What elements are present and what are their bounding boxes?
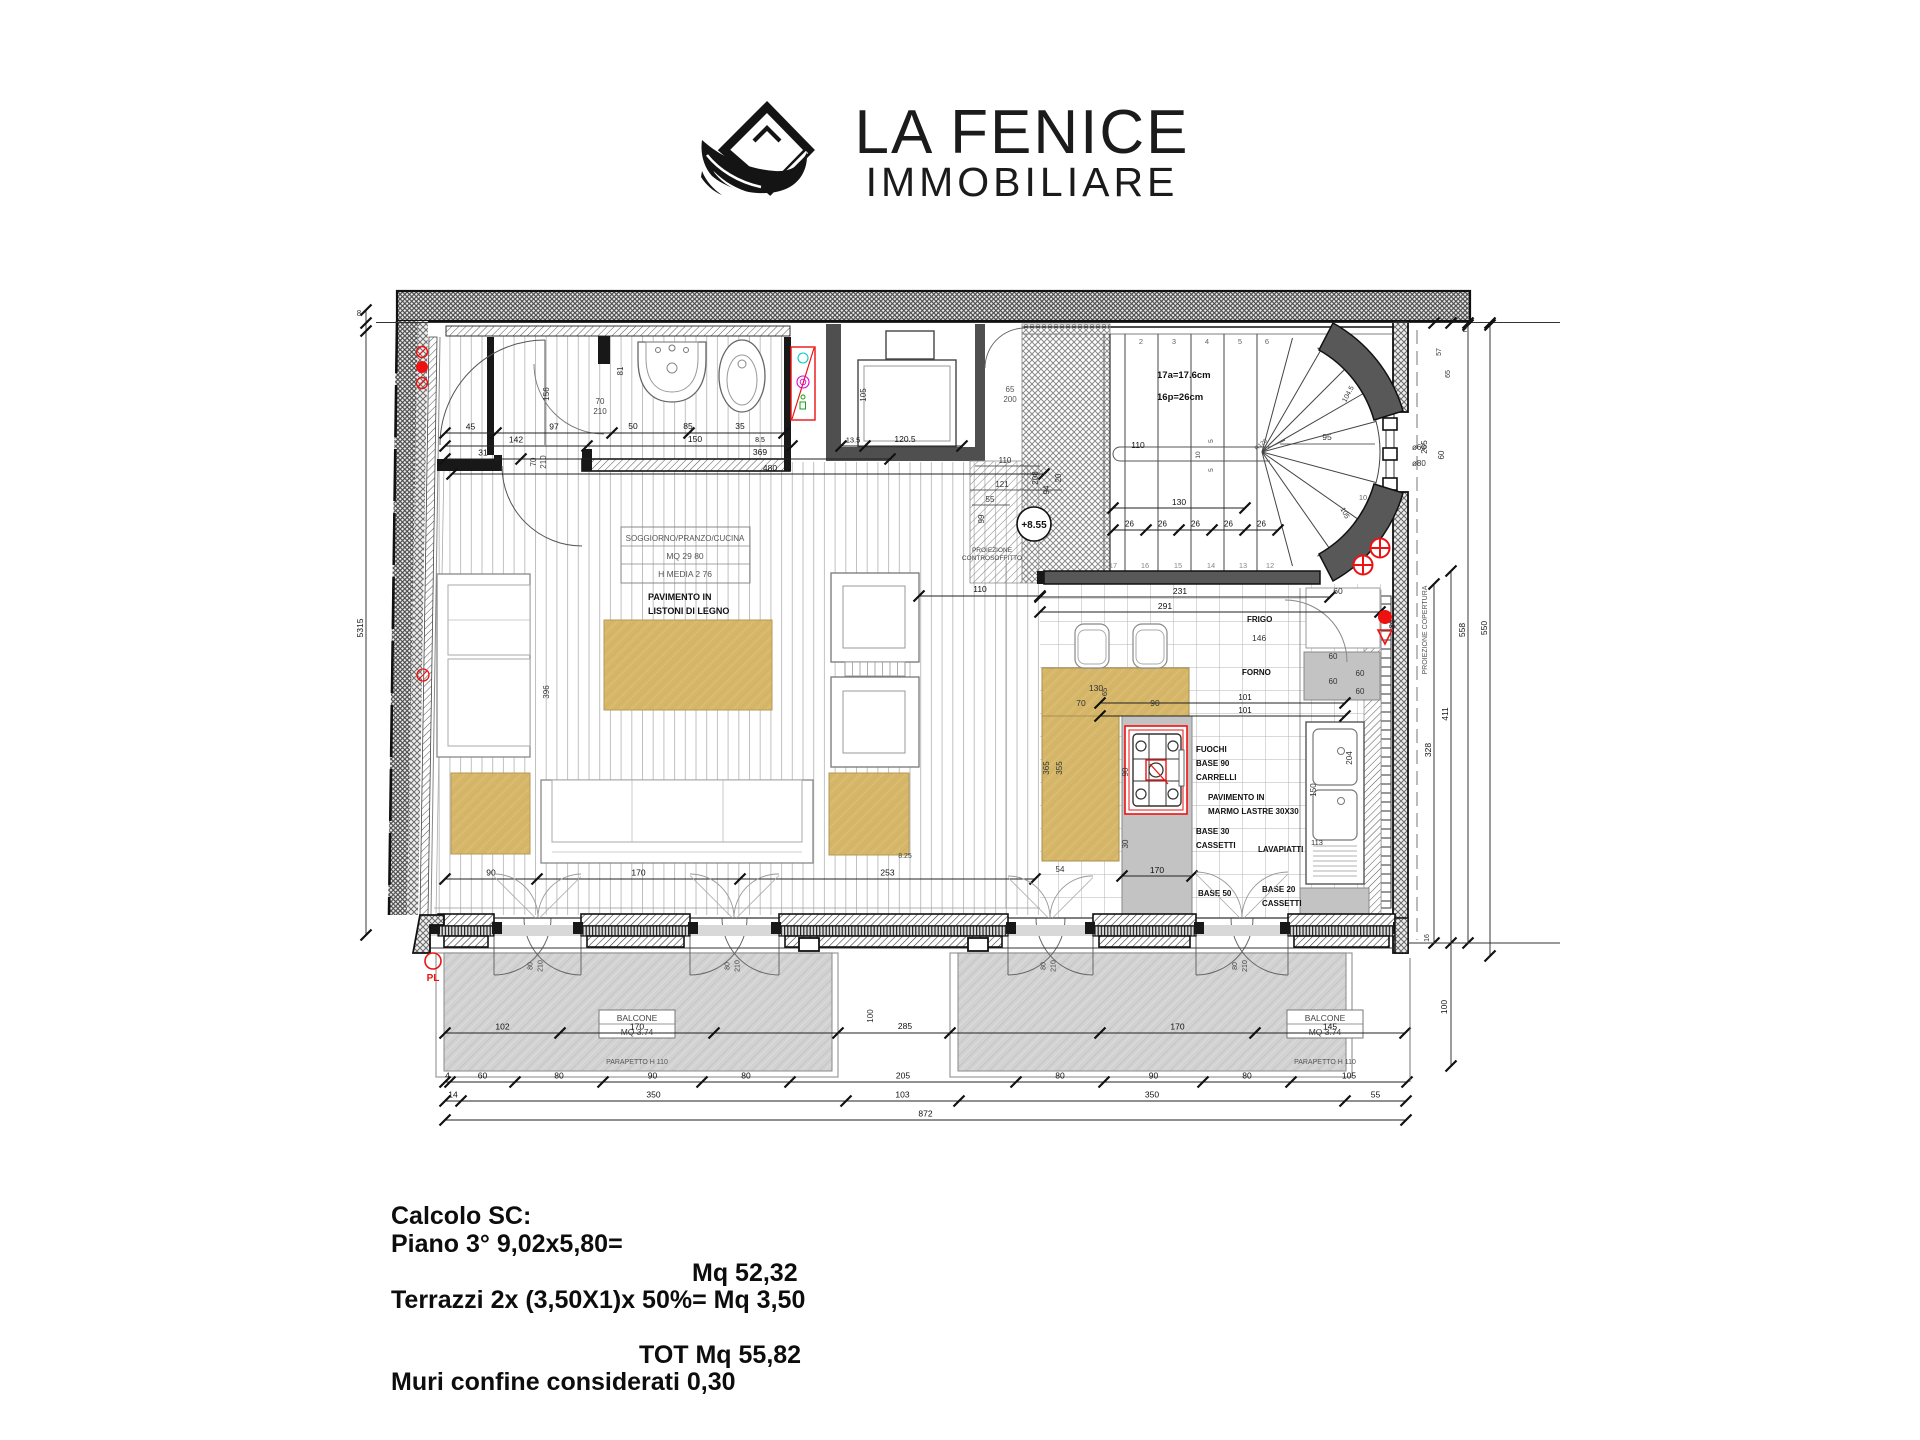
svg-text:60: 60	[1329, 652, 1338, 661]
svg-text:5: 5	[1238, 337, 1242, 346]
svg-text:411: 411	[1440, 707, 1450, 721]
svg-text:95: 95	[1322, 432, 1332, 442]
svg-text:Terrazzi 2x (3,50X1)x 50%= Mq: Terrazzi 2x (3,50X1)x 50%= Mq 3,50	[391, 1286, 805, 1314]
svg-text:90: 90	[1149, 1071, 1159, 1081]
svg-text:265: 265	[1420, 440, 1429, 454]
svg-text:110: 110	[1131, 440, 1145, 450]
svg-text:90: 90	[1150, 698, 1160, 708]
svg-text:2: 2	[1139, 337, 1143, 346]
svg-text:PARAPETTO H 110: PARAPETTO H 110	[606, 1059, 668, 1066]
svg-text:LA FENICE: LA FENICE	[855, 98, 1190, 167]
svg-text:80: 80	[1242, 1071, 1252, 1081]
svg-text:30: 30	[1121, 839, 1130, 848]
svg-text:BASE 30: BASE 30	[1196, 827, 1230, 836]
svg-text:204: 204	[1345, 751, 1354, 765]
svg-text:SOGGIORNO/PRANZO/CUCINA: SOGGIORNO/PRANZO/CUCINA	[626, 534, 745, 543]
svg-text:170: 170	[1150, 865, 1164, 875]
svg-text:205: 205	[896, 1071, 910, 1081]
svg-text:113: 113	[1311, 838, 1323, 847]
svg-text:Muri confine considerati 0,30: Muri confine considerati 0,30	[391, 1368, 736, 1396]
svg-text:550: 550	[1479, 621, 1489, 635]
svg-text:10: 10	[1359, 493, 1367, 502]
svg-text:Calcolo SC:: Calcolo SC:	[391, 1202, 531, 1230]
svg-text:105: 105	[859, 388, 868, 402]
svg-text:285: 285	[898, 1021, 912, 1031]
svg-text:80: 80	[1041, 962, 1048, 970]
svg-text:CARRELLI: CARRELLI	[1196, 773, 1236, 782]
svg-text:65: 65	[1445, 370, 1452, 378]
svg-text:12: 12	[1266, 561, 1274, 570]
svg-text:170: 170	[1170, 1022, 1184, 1032]
svg-text:PARAPETTO H 110: PARAPETTO H 110	[1294, 1059, 1356, 1066]
svg-text:365: 365	[1042, 761, 1051, 775]
svg-text:13.5: 13.5	[846, 436, 861, 445]
svg-text:26: 26	[1224, 520, 1233, 529]
svg-text:4: 4	[1205, 337, 1209, 346]
svg-text:PL: PL	[427, 973, 440, 984]
svg-text:210: 210	[735, 960, 742, 972]
svg-text:150: 150	[1309, 783, 1318, 797]
svg-text:146: 146	[1252, 633, 1266, 643]
svg-text:5: 5	[1208, 439, 1215, 443]
svg-text:210: 210	[1051, 960, 1058, 972]
svg-text:8.5: 8.5	[755, 437, 765, 444]
svg-text:16p=26cm: 16p=26cm	[1157, 392, 1203, 403]
svg-text:CONTROSOFFITTO: CONTROSOFFITTO	[962, 555, 1022, 562]
svg-text:170: 170	[630, 1022, 644, 1032]
svg-text:16: 16	[1141, 561, 1149, 570]
svg-text:Piano 3° 9,02x5,80=: Piano 3° 9,02x5,80=	[391, 1230, 623, 1258]
svg-text:26: 26	[1125, 520, 1134, 529]
svg-text:26: 26	[1191, 520, 1200, 529]
svg-text:80: 80	[528, 962, 535, 970]
svg-text:FUOCHI: FUOCHI	[1196, 745, 1227, 754]
svg-text:65: 65	[1006, 385, 1015, 394]
svg-text:31: 31	[478, 448, 488, 458]
svg-text:94: 94	[1042, 485, 1051, 494]
svg-text:60: 60	[1356, 687, 1365, 696]
svg-text:MARMO LASTRE 30X30: MARMO LASTRE 30X30	[1208, 807, 1299, 816]
svg-text:15: 15	[1174, 561, 1182, 570]
svg-text:55: 55	[1371, 1090, 1381, 1100]
svg-text:PROIEZIONE: PROIEZIONE	[972, 547, 1013, 554]
svg-text:558: 558	[1457, 623, 1467, 637]
svg-text:110: 110	[999, 456, 1012, 465]
svg-text:50: 50	[628, 421, 638, 431]
svg-text:210: 210	[538, 960, 545, 972]
svg-text:210: 210	[1242, 960, 1249, 972]
svg-text:60: 60	[1437, 450, 1446, 459]
svg-text:55: 55	[986, 495, 995, 504]
svg-text:105: 105	[1342, 1071, 1356, 1081]
svg-text:+8.55: +8.55	[1021, 520, 1047, 531]
svg-text:231: 231	[1173, 586, 1187, 596]
svg-text:102: 102	[495, 1022, 509, 1032]
svg-text:85: 85	[683, 421, 693, 431]
svg-text:FRIGO: FRIGO	[1247, 615, 1272, 624]
svg-text:355: 355	[1055, 761, 1064, 775]
svg-text:200: 200	[1003, 395, 1017, 404]
svg-text:LAVAPIATTI: LAVAPIATTI	[1258, 845, 1303, 854]
svg-text:80: 80	[1232, 962, 1239, 970]
svg-text:ø80: ø80	[1412, 459, 1426, 468]
svg-text:70: 70	[1076, 698, 1086, 708]
svg-text:120.5: 120.5	[894, 434, 916, 444]
svg-text:14: 14	[448, 1090, 458, 1100]
svg-text:TOT Mq 55,82: TOT Mq 55,82	[639, 1341, 801, 1369]
svg-text:80: 80	[554, 1071, 564, 1081]
svg-text:170: 170	[631, 868, 645, 878]
svg-text:101: 101	[1238, 693, 1252, 702]
svg-text:145: 145	[1323, 1022, 1337, 1032]
svg-text:60: 60	[1333, 586, 1343, 596]
svg-text:80: 80	[725, 962, 732, 970]
svg-text:LISTONI DI LEGNO: LISTONI DI LEGNO	[648, 606, 729, 616]
svg-text:480: 480	[763, 463, 777, 473]
svg-text:872: 872	[918, 1109, 932, 1119]
svg-text:BASE 90: BASE 90	[1196, 759, 1230, 768]
svg-text:100: 100	[866, 1009, 875, 1023]
svg-text:CASSETTI: CASSETTI	[1196, 841, 1236, 850]
svg-text:291: 291	[1158, 601, 1172, 611]
svg-text:60: 60	[1329, 677, 1338, 686]
svg-text:150: 150	[688, 434, 702, 444]
svg-text:253: 253	[880, 868, 894, 878]
svg-text:PROIEZIONE COPERTURA: PROIEZIONE COPERTURA	[1422, 585, 1429, 674]
svg-text:65: 65	[1100, 688, 1109, 696]
svg-text:350: 350	[1145, 1090, 1159, 1100]
svg-text:130: 130	[1172, 497, 1186, 507]
svg-text:60: 60	[1356, 669, 1365, 678]
svg-text:210: 210	[593, 407, 607, 416]
svg-text:80: 80	[741, 1071, 751, 1081]
svg-text:35: 35	[735, 421, 745, 431]
svg-text:208: 208	[1031, 471, 1040, 485]
svg-text:8: 8	[357, 309, 362, 318]
svg-text:H MEDIA 2 76: H MEDIA 2 76	[658, 569, 712, 579]
svg-text:5315: 5315	[355, 618, 365, 637]
svg-text:90: 90	[486, 868, 496, 878]
svg-text:156: 156	[542, 387, 551, 401]
svg-text:142: 142	[509, 435, 523, 445]
svg-text:90: 90	[648, 1071, 658, 1081]
svg-text:CASSETTI: CASSETTI	[1262, 899, 1302, 908]
svg-text:16: 16	[1424, 934, 1431, 942]
svg-text:PAVIMENTO IN: PAVIMENTO IN	[1208, 793, 1265, 802]
svg-text:54: 54	[1056, 865, 1065, 874]
svg-text:8.25: 8.25	[898, 853, 912, 860]
svg-text:FORNO: FORNO	[1242, 668, 1271, 677]
svg-text:10: 10	[1195, 451, 1202, 459]
svg-text:57: 57	[1436, 348, 1443, 356]
svg-text:97: 97	[549, 422, 559, 432]
svg-text:70: 70	[596, 397, 605, 406]
svg-text:20: 20	[1054, 473, 1063, 482]
svg-text:Mq 52,32: Mq 52,32	[692, 1259, 798, 1287]
svg-text:396: 396	[542, 685, 551, 699]
svg-text:210: 210	[539, 455, 548, 469]
svg-text:100: 100	[1439, 1000, 1449, 1014]
svg-text:328: 328	[1423, 743, 1433, 757]
svg-text:17: 17	[1109, 561, 1117, 570]
svg-text:110: 110	[973, 584, 987, 594]
svg-text:80: 80	[1055, 1071, 1065, 1081]
svg-text:99: 99	[977, 514, 986, 523]
svg-text:369: 369	[753, 447, 767, 457]
svg-text:103: 103	[895, 1090, 909, 1100]
svg-text:BASE 20: BASE 20	[1262, 885, 1296, 894]
svg-text:17a=17.6cm: 17a=17.6cm	[1157, 370, 1211, 381]
svg-text:101: 101	[1238, 706, 1252, 715]
svg-text:45: 45	[466, 422, 476, 432]
svg-text:MQ 29 80: MQ 29 80	[666, 551, 704, 561]
svg-text:90: 90	[1121, 767, 1130, 776]
svg-text:70: 70	[529, 457, 538, 466]
svg-text:13: 13	[1239, 561, 1247, 570]
svg-text:PAVIMENTO IN: PAVIMENTO IN	[648, 592, 712, 602]
svg-text:60: 60	[478, 1071, 488, 1081]
svg-text:IMMOBILIARE: IMMOBILIARE	[866, 159, 1179, 205]
svg-text:3: 3	[1172, 337, 1176, 346]
svg-text:5: 5	[1208, 468, 1215, 472]
svg-text:26: 26	[1257, 520, 1266, 529]
svg-text:81: 81	[616, 366, 625, 375]
svg-text:14: 14	[1207, 561, 1215, 570]
svg-text:26: 26	[1158, 520, 1167, 529]
svg-text:350: 350	[646, 1090, 660, 1100]
svg-text:6: 6	[1265, 337, 1269, 346]
svg-text:4: 4	[445, 1071, 450, 1081]
svg-text:121: 121	[995, 480, 1009, 489]
